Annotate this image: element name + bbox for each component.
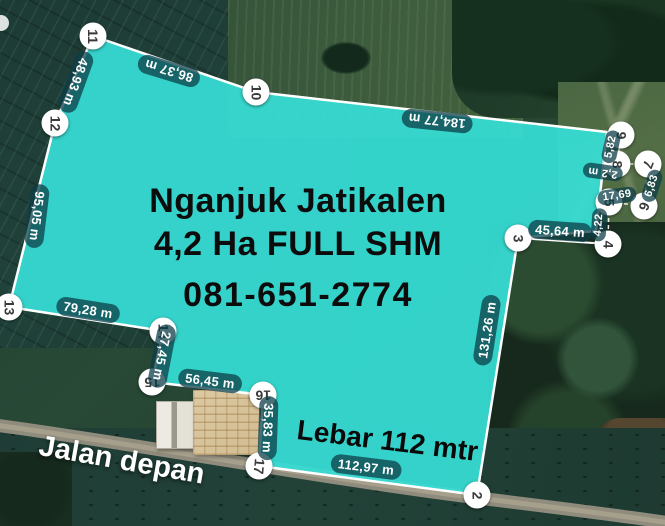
measurement-label-35-83m: 35,83 m [257,396,278,460]
vertex-number: 12 [47,115,63,131]
measurement-label-4-22: 4,22 [590,208,607,242]
vertex-marker-10: 10 [243,79,270,106]
vertex-number: 11 [85,29,101,44]
headline-location: Nganjuk Jatikalen [118,180,478,223]
headline-area-status: 4,2 Ha FULL SHM [118,223,478,266]
vertex-number: 2 [469,491,485,499]
satellite-map-canvas: 11 10 12 13 14 15 16 17 2 3 4 5 6 7 8 9 … [0,0,665,526]
vertex-number: 4 [600,240,616,248]
vertex-marker-2: 2 [464,482,491,509]
vertex-number: 3 [510,234,526,242]
vertex-number: 10 [248,84,264,100]
vertex-number: 13 [1,299,17,315]
headline: Nganjuk Jatikalen 4,2 Ha FULL SHM 081-65… [118,180,478,317]
vertex-number: 17 [250,458,267,475]
headline-phone-number: 081-651-2774 [118,274,478,317]
vertex-marker-12: 12 [42,110,69,137]
vertex-number: 7 [639,158,657,171]
vertex-marker-11: 11 [80,23,107,50]
